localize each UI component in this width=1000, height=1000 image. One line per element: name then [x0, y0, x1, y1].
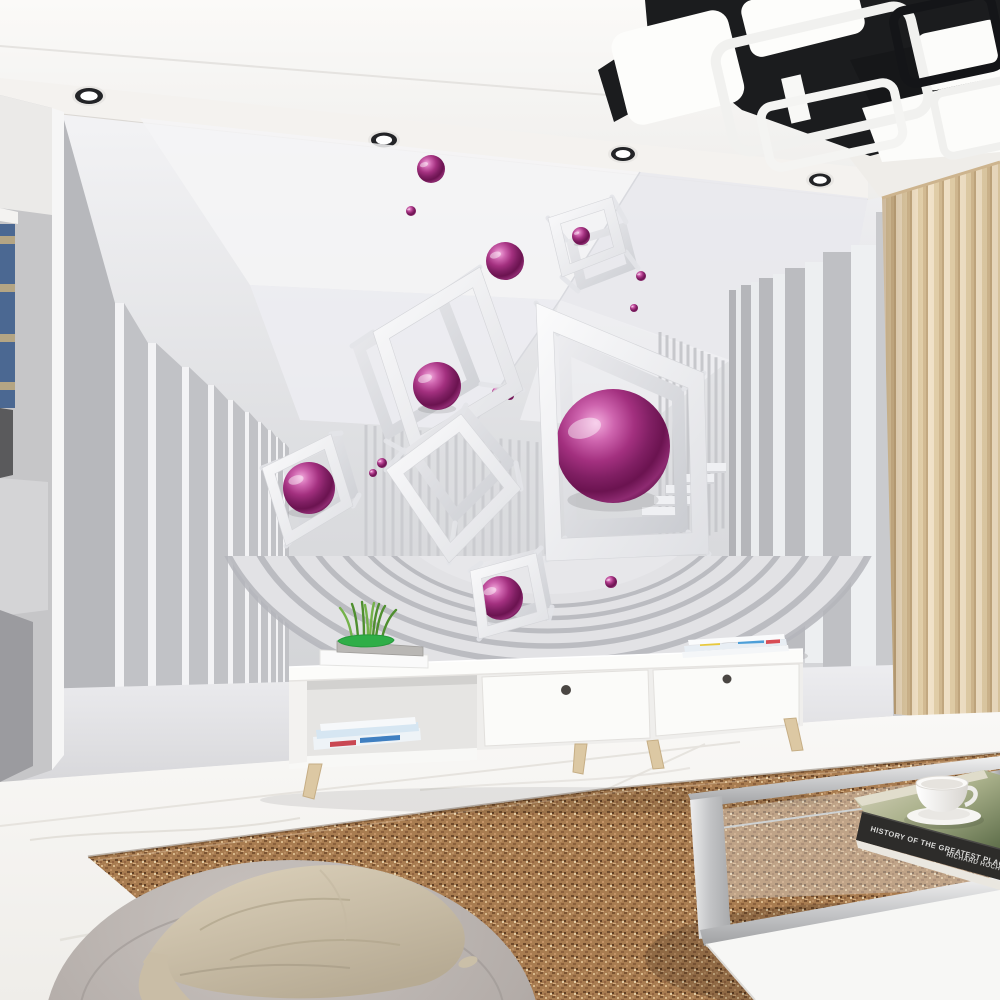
purple-sphere — [605, 576, 617, 588]
curtain — [882, 162, 1000, 724]
purple-sphere — [369, 469, 377, 477]
cube-strut — [549, 607, 552, 619]
drawer-knob — [561, 685, 571, 695]
purple-sphere — [413, 362, 461, 410]
purple-sphere — [630, 304, 638, 312]
purple-sphere — [283, 462, 335, 514]
column-gap — [851, 245, 876, 692]
living-room-photo: HISTORY OF THE GREATEST PLACES RICHARD H… — [0, 0, 1000, 1000]
purple-sphere — [486, 242, 524, 280]
scene-canvas: HISTORY OF THE GREATEST PLACES RICHARD H… — [0, 0, 1000, 1000]
pillar-face — [189, 367, 208, 737]
pillar-face — [214, 385, 228, 725]
drawer-knob — [723, 675, 732, 684]
spotlight — [72, 86, 106, 106]
cube-strut — [536, 548, 541, 553]
spotlight — [806, 172, 834, 189]
spotlight-bulb — [616, 150, 631, 158]
pillar-edge — [182, 367, 189, 737]
spotlight-bulb — [813, 176, 827, 184]
leaf-dish — [338, 635, 394, 647]
purple-sphere — [377, 458, 387, 468]
purple-sphere — [572, 227, 590, 245]
drawer-left — [482, 670, 650, 746]
purple-sphere — [406, 206, 416, 216]
cube-strut — [331, 433, 341, 434]
column — [729, 290, 736, 600]
stair-tread — [642, 507, 678, 516]
spotlight — [608, 145, 638, 163]
wall-corner-trim — [52, 108, 64, 770]
window-blind — [0, 224, 15, 408]
purple-sphere — [636, 271, 646, 281]
spotlight-bulb — [376, 136, 392, 145]
spotlight-bulb — [80, 91, 97, 100]
purple-sphere — [417, 155, 445, 183]
left-wall — [0, 95, 64, 788]
pillar-edge — [208, 385, 214, 725]
column — [823, 252, 851, 678]
purple-sphere — [556, 389, 670, 503]
